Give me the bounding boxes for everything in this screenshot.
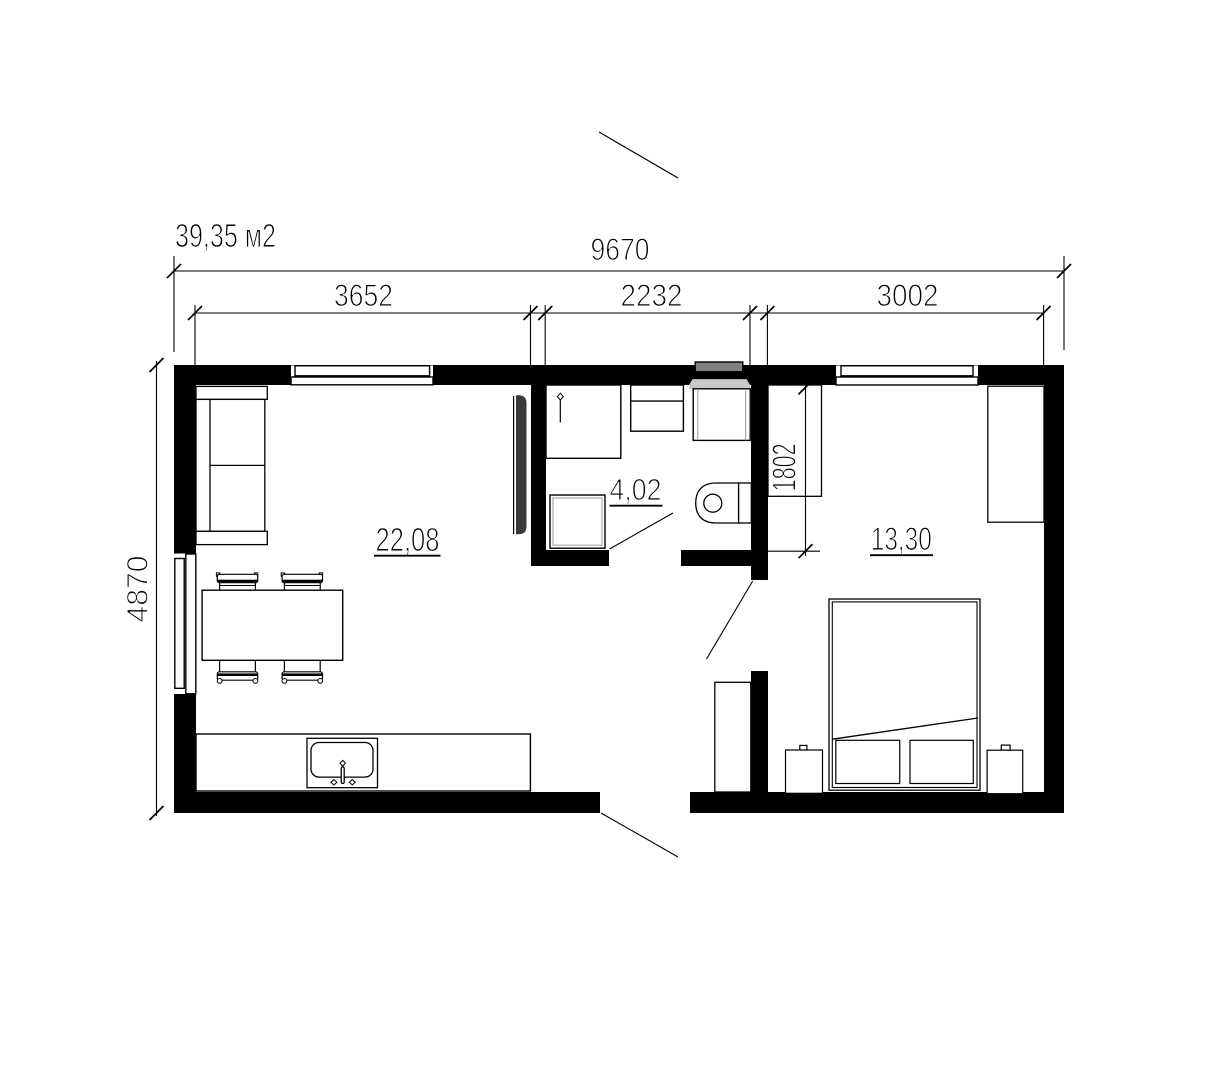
svg-text:2232: 2232 — [621, 277, 683, 313]
svg-text:39,35 м2: 39,35 м2 — [175, 217, 276, 254]
svg-text:3002: 3002 — [877, 277, 939, 313]
svg-text:4870: 4870 — [122, 556, 155, 623]
svg-text:4,02: 4,02 — [610, 472, 662, 507]
svg-text:13,30: 13,30 — [871, 521, 932, 557]
svg-text:3652: 3652 — [334, 277, 393, 313]
svg-text:9670: 9670 — [591, 231, 650, 267]
svg-text:22,08: 22,08 — [376, 521, 440, 558]
svg-text:1802: 1802 — [766, 443, 803, 491]
